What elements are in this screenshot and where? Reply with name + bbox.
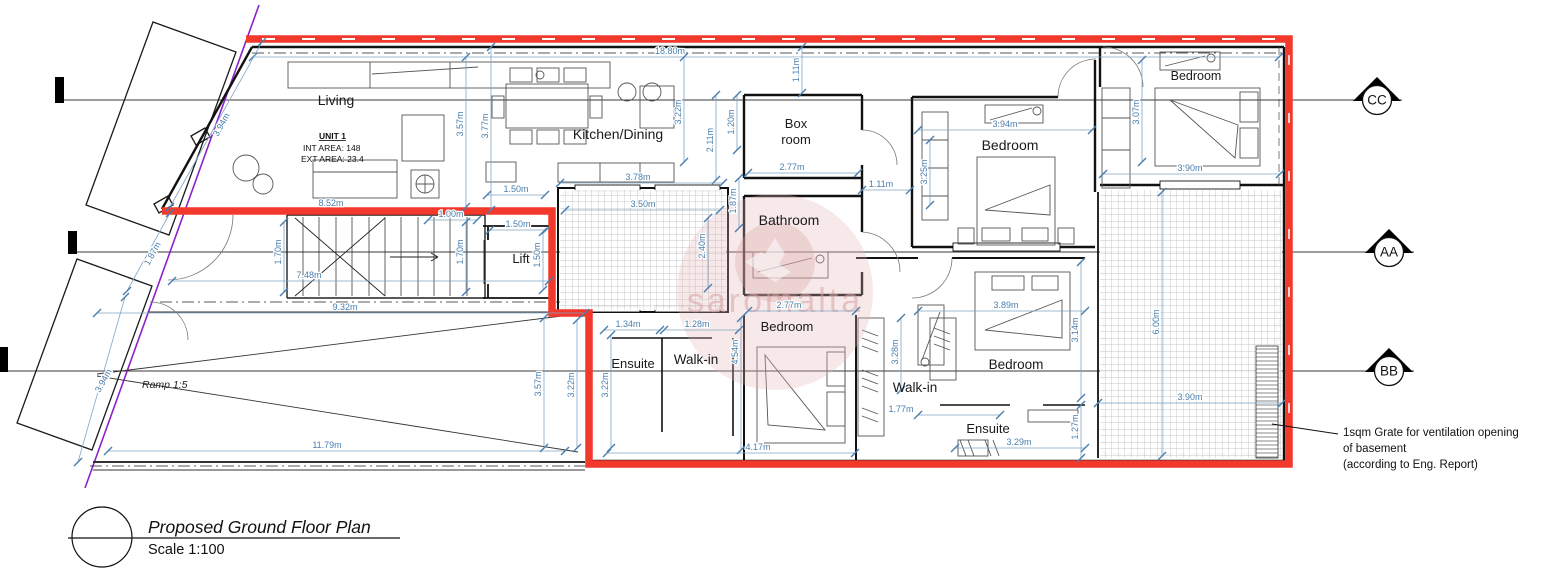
dimension-label: 1.34m: [615, 319, 640, 329]
grate-note: 1sqm Grate for ventilation opening of ba…: [1272, 424, 1519, 471]
dimension-label: 1.27m: [1070, 414, 1080, 439]
room-label: Walk-in: [674, 352, 719, 367]
unit-info: UNIT 1 INT AREA: 148 EXT AREA: 23.4: [301, 131, 364, 164]
dimension-tick: [121, 293, 129, 301]
room-label: Kitchen/Dining: [573, 126, 663, 142]
dimension-label: 11.79m: [312, 440, 341, 450]
dimension-label: 9.32m: [332, 302, 357, 312]
room-label: Ensuite: [966, 421, 1009, 436]
drawing-title: Proposed Ground Floor Plan: [148, 517, 371, 537]
dimension-label: 3.22m: [600, 372, 610, 397]
dimension-label: 3.14m: [1070, 317, 1080, 342]
dimension-label: 1.77m: [888, 404, 913, 414]
dimension-label: 1.50m: [505, 219, 530, 229]
dimension-label: 1.20m: [726, 109, 736, 134]
dimension-label: 3.57m: [455, 111, 465, 136]
section-marker-CC: CC: [1353, 77, 1401, 115]
unit-ext-area: EXT AREA: 23.4: [301, 154, 364, 164]
neighbour-outlines: [17, 22, 236, 450]
dimension-label: 1.50m: [503, 184, 528, 194]
drawing-scale: Scale 1:100: [148, 542, 225, 558]
room-label: Ensuite: [611, 356, 654, 371]
dimension-label: 1.11m: [791, 58, 801, 82]
section-marker-AA: AA: [1365, 229, 1413, 267]
dimension-tick: [74, 458, 82, 466]
unit-name: UNIT 1: [319, 131, 346, 141]
dimension-tick: [123, 287, 131, 295]
section-marker-label: AA: [1380, 245, 1398, 260]
dimension-label: 3.22m: [566, 372, 576, 397]
dimension-label: 3.25m: [919, 159, 929, 184]
floor-plan-canvas: saromalta 18.80m1.11m3.57m3.77m3.22m2.11…: [0, 0, 1555, 573]
dimension-label: 3.94m: [992, 119, 1017, 129]
room-label: room: [781, 132, 811, 147]
dimension-label: 1.70m: [455, 239, 465, 264]
hatched-yards: [560, 190, 1282, 458]
section-marker-BB: BB: [1365, 348, 1413, 386]
site-boundary-line: [85, 5, 259, 488]
dimension-label: 4.17m: [745, 442, 770, 452]
dimension-label: 3.90m: [1177, 392, 1202, 402]
ventilation-grate: [1256, 346, 1278, 458]
dimension-label: 2.40m: [697, 233, 707, 258]
room-label: Walk-in: [893, 380, 938, 395]
dimension-label: 3.50m: [630, 199, 655, 209]
dimension-label: 1.70m: [273, 239, 283, 264]
section-marker-label: CC: [1367, 93, 1387, 108]
section-marker-label: BB: [1380, 364, 1398, 379]
ramp-label: Ramp 1:5: [142, 379, 188, 391]
unit-int-area: INT AREA: 148: [303, 143, 361, 153]
note-line-2: of basement: [1343, 443, 1407, 455]
dimension-label: 3.77m: [480, 113, 490, 138]
section-marker-layer: CCAABB: [1353, 77, 1413, 386]
dimension-label: 3.78m: [625, 172, 650, 182]
dimension-label: 1.11m: [869, 179, 893, 189]
dimension-label: 1.00m: [438, 209, 463, 219]
dimension-label: 4.54m: [730, 339, 740, 364]
dimension-label: 3.28m: [890, 339, 900, 364]
note-line-3: (according to Eng. Report): [1343, 459, 1478, 471]
room-label: Lift: [512, 251, 530, 266]
watermark-text: saromalta: [687, 282, 863, 320]
dimension-label: 1.50m: [532, 242, 542, 267]
room-label: Bathroom: [759, 212, 820, 228]
dimension-label: 2.11m: [705, 128, 715, 152]
room-label: Bedroom: [761, 319, 814, 334]
dimension-label: 1.87m: [728, 188, 738, 213]
dimension-label: 3.22m: [673, 99, 683, 124]
room-label: Bedroom: [1171, 69, 1222, 83]
dimension-label: 1.87m: [142, 240, 163, 267]
room-label: Living: [318, 92, 355, 108]
dimension-label: 18.80m: [655, 46, 685, 56]
dimension-label: 3.90m: [1177, 163, 1202, 173]
room-label: Bedroom: [982, 137, 1039, 153]
room-label: Bedroom: [989, 357, 1044, 372]
dimension-label: 2.77m: [776, 300, 801, 310]
dimension-label: 1.28m: [684, 319, 709, 329]
dimension-label: 3.89m: [993, 300, 1018, 310]
dimension-label: 2.77m: [779, 162, 804, 172]
section-line-end-bars: [0, 77, 77, 372]
dimension-label: 3.07m: [1131, 99, 1141, 124]
dimension-label: 8.52m: [318, 198, 343, 208]
title-block: Proposed Ground Floor Plan Scale 1:100: [68, 507, 400, 567]
dimension-label: 6.00m: [1151, 309, 1161, 334]
room-label: Box: [785, 116, 808, 131]
dimension-label: 3.29m: [1006, 437, 1031, 447]
note-line-1: 1sqm Grate for ventilation opening: [1343, 427, 1519, 439]
dimension-label: 3.57m: [533, 371, 543, 396]
dimension-label: 7.48m: [296, 270, 321, 280]
